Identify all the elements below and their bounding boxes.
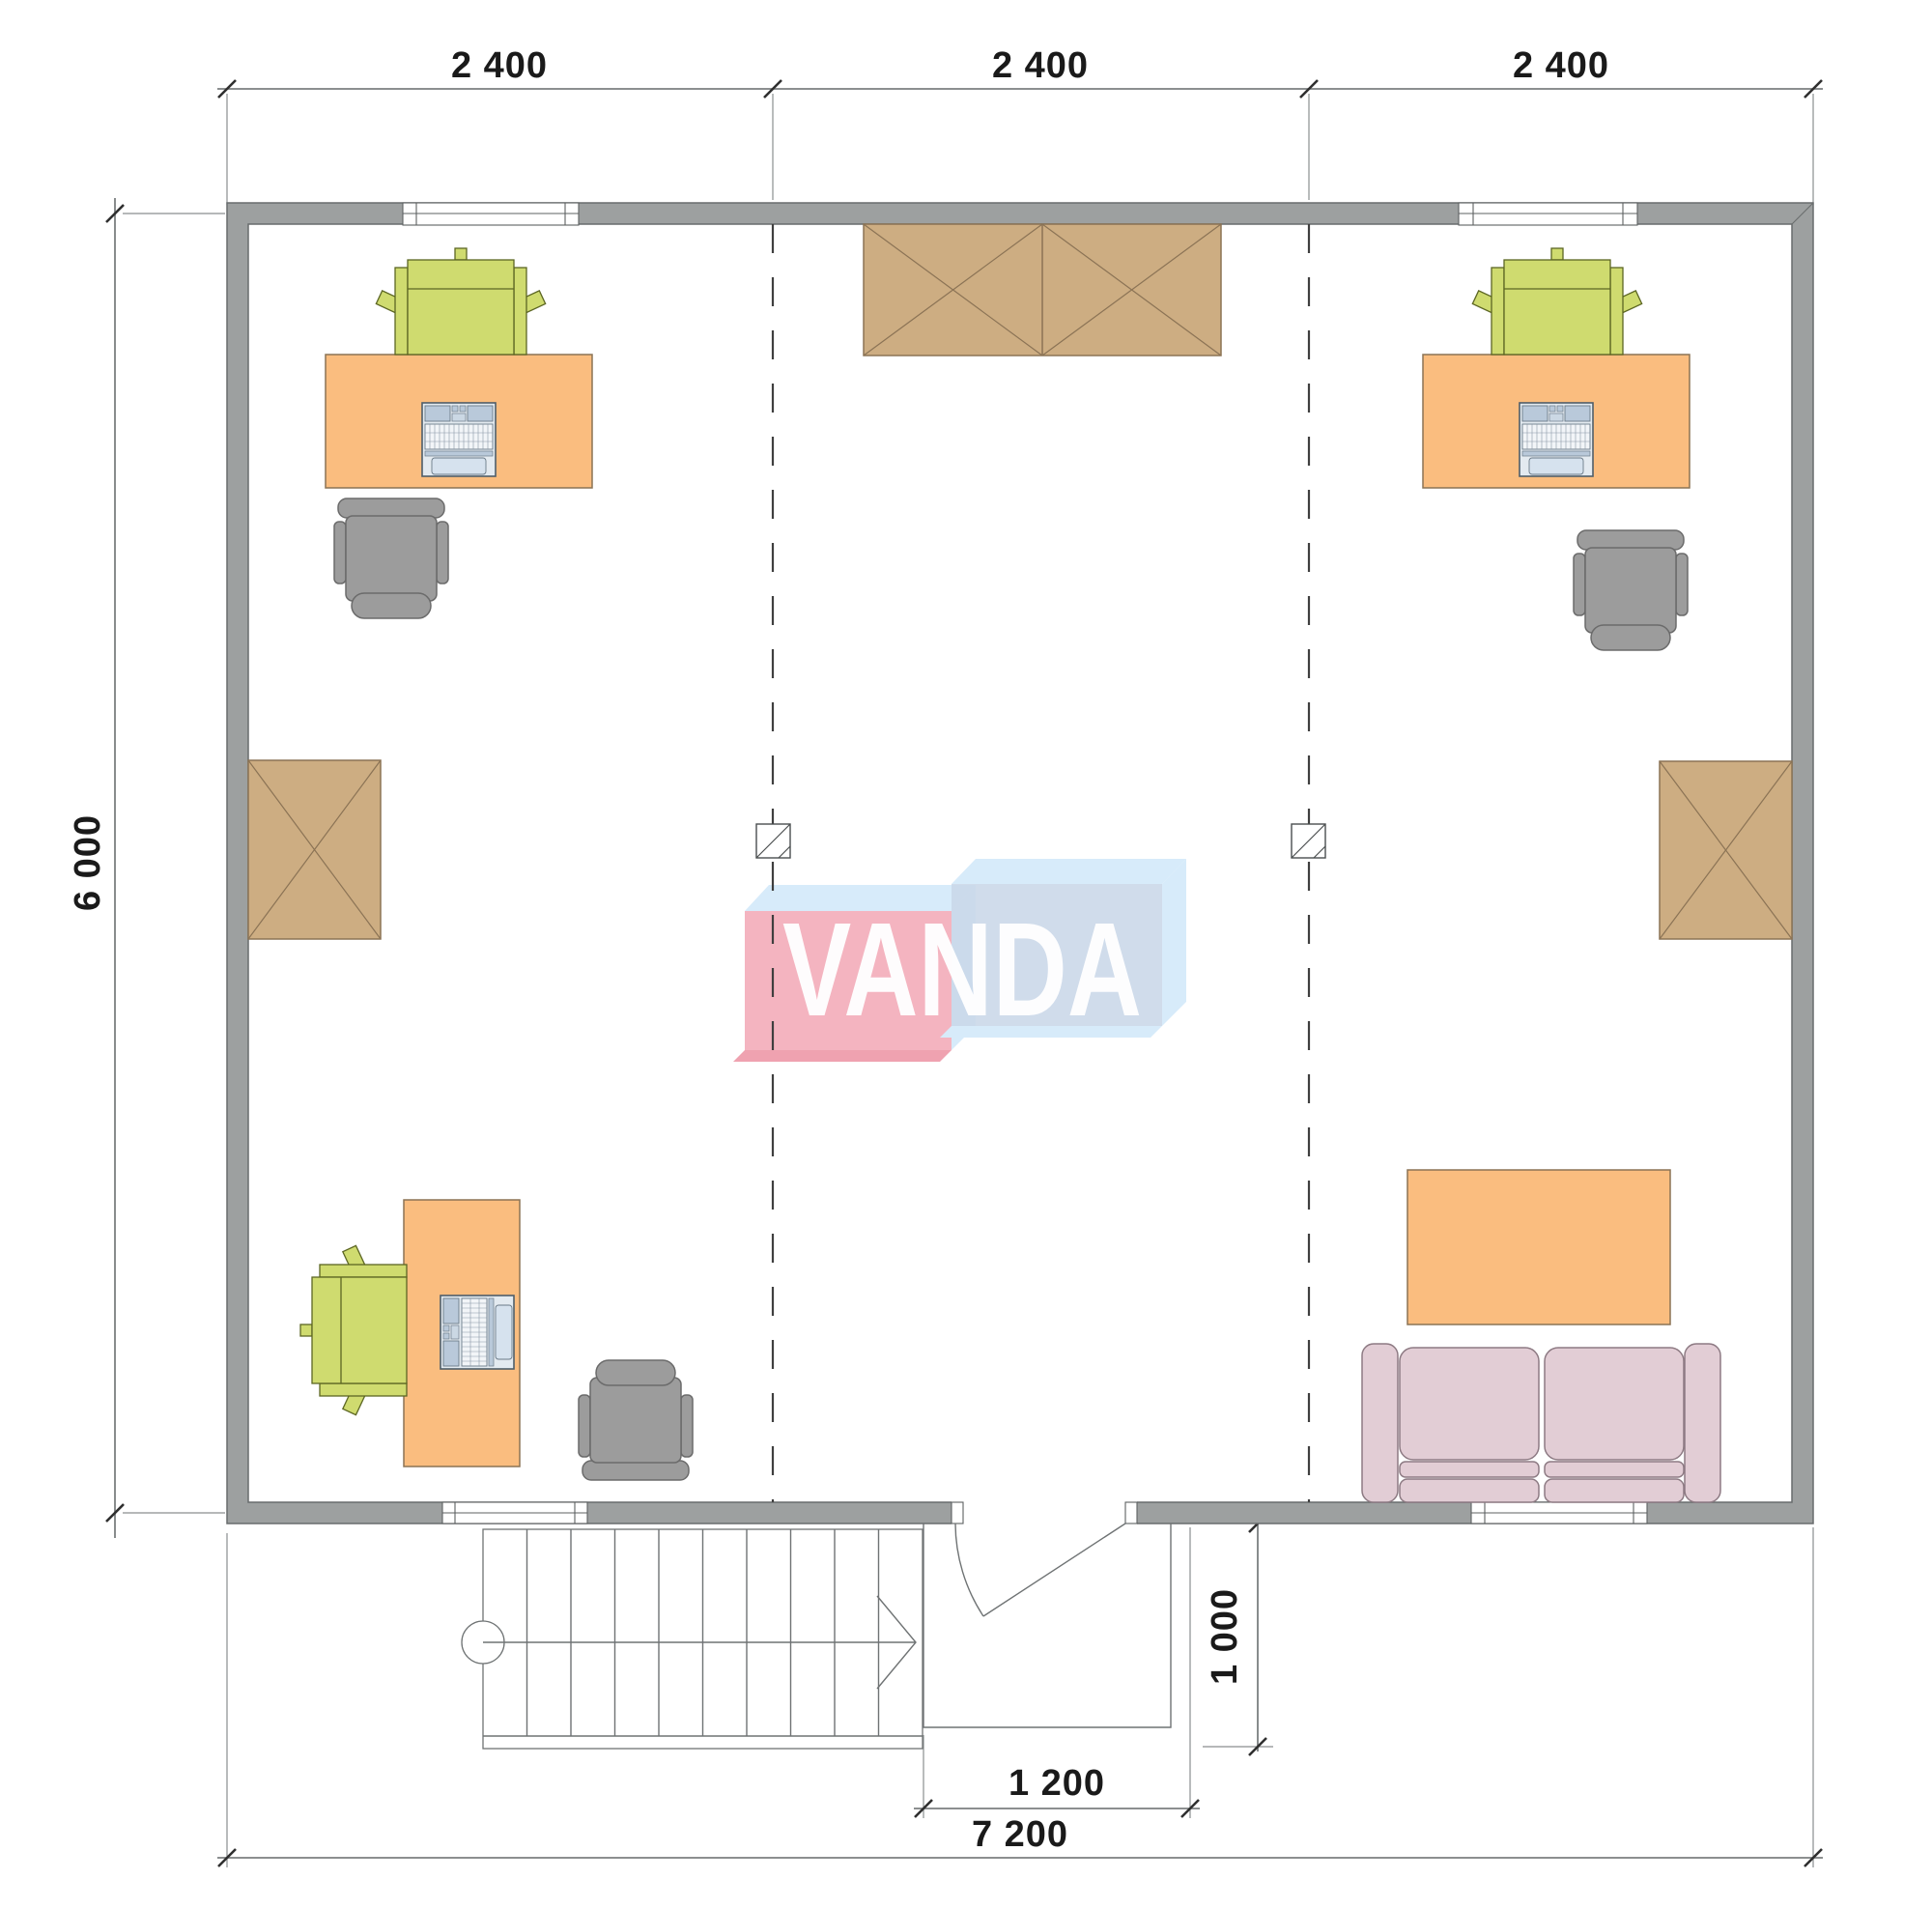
dim-label-bay3: 2 400 xyxy=(1513,45,1609,86)
sofa-seat-left xyxy=(1400,1348,1539,1460)
dim-label-bay2: 2 400 xyxy=(992,45,1089,86)
vanda-logo: VANDA xyxy=(733,859,1186,1062)
sofa-back-right xyxy=(1545,1479,1684,1502)
keyboard-top-left xyxy=(422,403,496,476)
dimension-bottom-overall: 7 200 xyxy=(217,1527,1823,1867)
office-chair-top-right xyxy=(1574,530,1688,650)
office-chair-top-left xyxy=(334,498,448,618)
column-right xyxy=(1292,824,1325,858)
logo-blue-top-face xyxy=(952,859,1186,884)
dimension-left: 6 000 xyxy=(68,198,225,1538)
floor-plan-sheet: 2 400 2 400 2 400 6 000 7 200 1 200 1 00… xyxy=(0,0,1932,1908)
window-bottom-left xyxy=(442,1502,587,1524)
floor-plan-drawing: 2 400 2 400 2 400 6 000 7 200 1 200 1 00… xyxy=(0,0,1932,1908)
sofa-back-left xyxy=(1400,1479,1539,1502)
task-chair-bottom-left xyxy=(300,1245,407,1414)
dim-label-entry: 1 200 xyxy=(1009,1763,1105,1804)
column-left xyxy=(756,824,790,858)
door-swing-arc xyxy=(955,1524,983,1616)
dim-label-depth: 6 000 xyxy=(68,814,108,911)
window-top-left xyxy=(403,203,579,225)
logo-pink-shadow-face xyxy=(733,1050,952,1062)
dimension-top: 2 400 2 400 2 400 xyxy=(217,45,1823,205)
window-bottom-right xyxy=(1471,1502,1647,1524)
door-leaf xyxy=(983,1524,1125,1616)
dimension-entry: 1 200 xyxy=(914,1527,1200,1818)
laptop-bottom-left xyxy=(440,1296,514,1369)
entrance-door xyxy=(952,1500,1137,1616)
sofa-front-left xyxy=(1400,1462,1539,1477)
columns xyxy=(756,824,1325,858)
dim-label-overall: 7 200 xyxy=(972,1814,1068,1855)
stairs xyxy=(462,1529,923,1749)
coffee-table xyxy=(1407,1170,1670,1324)
dim-label-porch: 1 000 xyxy=(1205,1588,1245,1685)
dimension-porch: 1 000 xyxy=(1203,1515,1273,1755)
door-jamb-right xyxy=(1125,1502,1137,1524)
office-chair-bottom-left xyxy=(579,1360,693,1480)
sofa-front-right xyxy=(1545,1462,1684,1477)
task-chair-top-right xyxy=(1472,248,1641,355)
keyboard-top-right xyxy=(1520,403,1593,476)
sofa-arm-right xyxy=(1685,1344,1720,1502)
porch-outline xyxy=(923,1524,1171,1727)
sofa-arm-left xyxy=(1362,1344,1398,1502)
window-top-right xyxy=(1459,203,1637,225)
sofa xyxy=(1362,1344,1720,1502)
task-chair-top-left xyxy=(376,248,545,355)
dim-label-bay1: 2 400 xyxy=(451,45,548,86)
door-opening xyxy=(952,1500,1137,1525)
door-jamb-left xyxy=(952,1502,963,1524)
logo-blue-side-face xyxy=(1162,859,1186,1026)
logo-wordmark: VANDA xyxy=(782,896,1142,1044)
sofa-seat-right xyxy=(1545,1348,1684,1460)
